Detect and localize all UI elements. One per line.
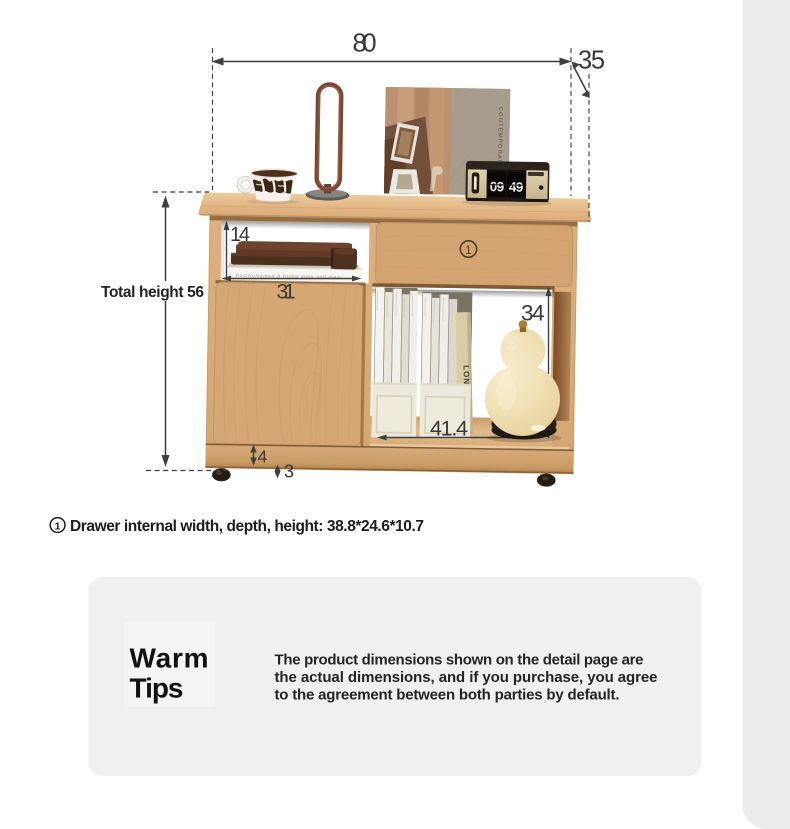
- svg-text:1: 1: [55, 521, 61, 533]
- svg-text:80: 80: [353, 30, 377, 58]
- svg-text:09: 09: [490, 179, 505, 194]
- svg-text:to the agreement between both: to the agreement between both parties by…: [275, 687, 620, 704]
- svg-text:Drawer internal width, depth,: Drawer internal width, depth, height: 38…: [70, 518, 424, 535]
- svg-text:Warm: Warm: [130, 643, 209, 674]
- svg-text:Tips: Tips: [130, 673, 184, 704]
- svg-text:41.4: 41.4: [430, 417, 468, 441]
- svg-text:3: 3: [284, 462, 294, 482]
- svg-text:14: 14: [230, 224, 250, 246]
- svg-text:1: 1: [465, 245, 471, 257]
- svg-text:the actual dimensions, and if: the actual dimensions, and if you purcha…: [275, 669, 658, 686]
- svg-text:Total height 56: Total height 56: [101, 284, 204, 301]
- svg-text:31: 31: [277, 281, 296, 304]
- svg-text:The product dimensions shown o: The product dimensions shown on the deta…: [275, 652, 644, 669]
- svg-text:49: 49: [509, 180, 524, 195]
- svg-text:4: 4: [258, 447, 268, 467]
- svg-text:35: 35: [578, 47, 605, 75]
